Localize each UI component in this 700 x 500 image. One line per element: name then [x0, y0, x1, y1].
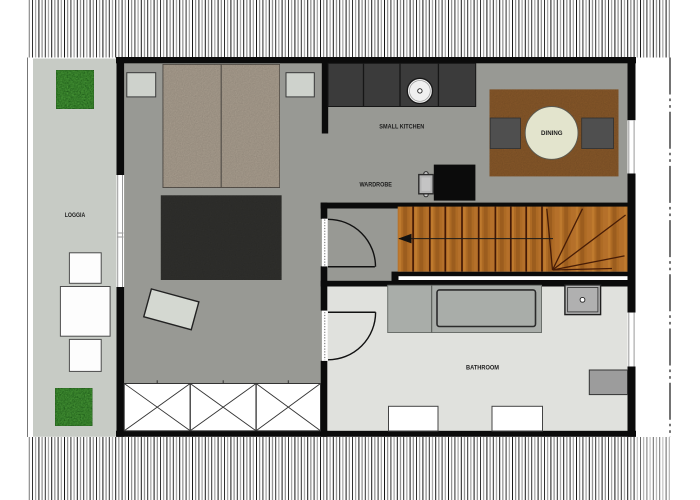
svg-text:BATHROOM: BATHROOM — [466, 364, 499, 371]
svg-text:DINING: DINING — [541, 130, 563, 137]
svg-text:SMALL KITCHEN: SMALL KITCHEN — [379, 124, 424, 131]
svg-text:WARDROBE: WARDROBE — [359, 181, 392, 188]
svg-text:LOGGIA: LOGGIA — [65, 212, 86, 219]
